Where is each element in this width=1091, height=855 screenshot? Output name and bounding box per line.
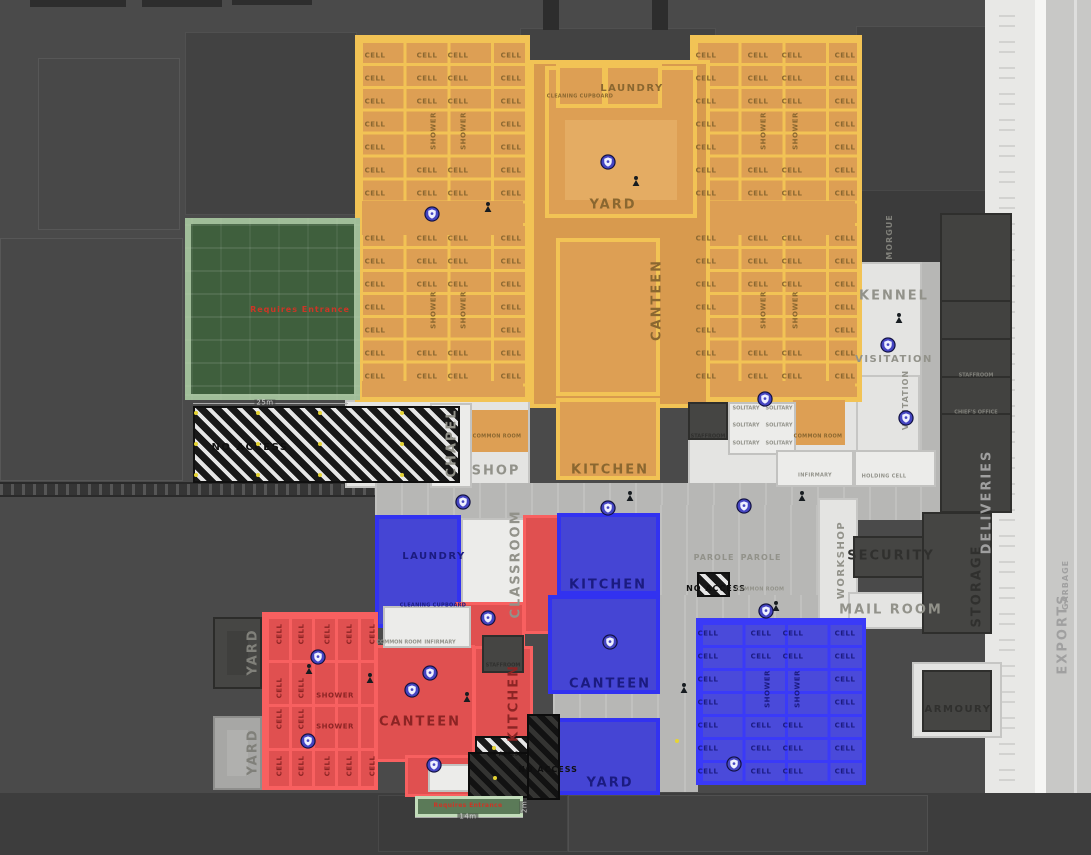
cell-label: CELL <box>835 328 856 335</box>
guard-badge-icon[interactable] <box>757 391 774 408</box>
label-chapel: CHAPEL <box>446 408 459 477</box>
cell-label: CELL <box>365 53 386 60</box>
label-kitchen-blue: KITCHEN <box>569 579 647 592</box>
label-requires-entrance: Requires Entrance <box>434 803 503 809</box>
cell-label: CELL <box>501 53 522 60</box>
guard-badge-icon[interactable] <box>300 733 317 750</box>
cell-label: CELL <box>835 746 856 753</box>
bg-bar <box>543 0 559 30</box>
cell-label: CELL <box>501 374 522 381</box>
cell-label: CELL <box>501 168 522 175</box>
cell-label: CELL <box>277 756 284 777</box>
cell-label: CELL <box>696 259 717 266</box>
cell-label: CELL <box>782 53 803 60</box>
cell-label: CELL <box>347 756 354 777</box>
cell-label: CELL <box>501 191 522 198</box>
cell-label: CELL <box>277 624 284 645</box>
cell-label: CELL <box>835 677 856 684</box>
cell-label: CELL <box>835 53 856 60</box>
cell-label: CELL <box>365 168 386 175</box>
cell-label: CELL <box>448 53 469 60</box>
cell-label: CELL <box>835 99 856 106</box>
canteen-room-orange[interactable] <box>556 238 660 396</box>
bg-building-nw <box>38 58 180 230</box>
bg-bar <box>652 0 668 30</box>
cell-label: CELL <box>365 122 386 129</box>
label-shower: SHOWER <box>431 291 438 329</box>
cell-label: CELL <box>370 624 377 645</box>
guard-badge-icon[interactable] <box>422 665 439 682</box>
cell-label: CELL <box>696 374 717 381</box>
south-corridor[interactable] <box>658 595 698 792</box>
guard-badge-icon[interactable] <box>455 494 472 511</box>
person-icon[interactable] <box>366 673 375 684</box>
cell-label: CELL <box>696 168 717 175</box>
label-yard-blue: YARD <box>586 777 633 790</box>
no-access-dot <box>256 473 260 477</box>
cell-label: CELL <box>417 168 438 175</box>
label-canteen-orange: CANTEEN <box>651 259 664 341</box>
label-infirmary: INFIRMARY <box>798 474 832 479</box>
cell-label: CELL <box>501 145 522 152</box>
cell-label: CELL <box>696 191 717 198</box>
cell-label: CELL <box>417 53 438 60</box>
guard-badge-icon[interactable] <box>600 500 617 517</box>
cell-label: CELL <box>501 259 522 266</box>
cell-label: CELL <box>696 122 717 129</box>
cell-label: CELL <box>782 76 803 83</box>
label-common-room: COMMON ROOM <box>794 435 843 440</box>
cell-label: CELL <box>448 76 469 83</box>
guard-badge-icon[interactable] <box>480 610 497 627</box>
cell-label: CELL <box>501 305 522 312</box>
canteen-red-zone[interactable] <box>375 645 475 762</box>
bg-building-topleft <box>185 32 357 215</box>
cell-label: CELL <box>299 624 306 645</box>
cell-label: CELL <box>835 631 856 638</box>
cell-label: CELL <box>698 654 719 661</box>
label-common-room: COMMON ROOM <box>473 435 522 440</box>
cell-label: CELL <box>835 700 856 707</box>
nw-corridor-lower[interactable] <box>362 381 523 397</box>
cell-label: CELL <box>835 76 856 83</box>
cell-label: CELL <box>698 723 719 730</box>
cell-label: CELL <box>783 723 804 730</box>
cell-label: CELL <box>751 723 772 730</box>
no-access-dot <box>256 442 260 446</box>
cell-label: CELL <box>782 168 803 175</box>
cell-label: CELL <box>448 374 469 381</box>
cell-label: CELL <box>782 259 803 266</box>
label-shower: SHOWER <box>316 693 354 700</box>
cell-label: CELL <box>299 756 306 777</box>
person-icon[interactable] <box>463 692 472 703</box>
label-common-room: COMMON ROOM <box>736 588 785 593</box>
cell-label: CELL <box>417 351 438 358</box>
cell-label: CELL <box>751 769 772 776</box>
cell-label: CELL <box>748 374 769 381</box>
label-shower: SHOWER <box>793 291 800 329</box>
person-icon[interactable] <box>632 176 641 187</box>
cell-label: CELL <box>417 191 438 198</box>
no-access-dot <box>675 739 679 743</box>
label-security: SECURITY <box>847 550 934 563</box>
ne-corridor-lower[interactable] <box>697 381 855 397</box>
label-solitary: SOLITARY <box>733 424 760 429</box>
office-divider <box>942 338 1010 340</box>
label-shower: SHOWER <box>761 291 768 329</box>
cell-label: CELL <box>696 282 717 289</box>
cell-label: CELL <box>698 631 719 638</box>
label-kitchen-orange: KITCHEN <box>571 464 649 477</box>
cell-label: CELL <box>698 746 719 753</box>
cleaning-cupboard-room[interactable] <box>556 64 606 108</box>
label-shower: SHOWER <box>793 112 800 150</box>
no-access-dark-2[interactable] <box>527 714 560 800</box>
cell-label: CELL <box>835 723 856 730</box>
label-workshop: WORKSHOP <box>837 521 847 599</box>
cell-label: CELL <box>417 259 438 266</box>
no-access-dot <box>194 442 198 446</box>
cell-label: CELL <box>696 99 717 106</box>
cell-label: CELL <box>417 282 438 289</box>
cell-label: CELL <box>501 236 522 243</box>
cell-label: CELL <box>501 76 522 83</box>
cell-label: CELL <box>448 351 469 358</box>
cell-label: CELL <box>696 236 717 243</box>
cell-label: CELL <box>501 351 522 358</box>
cell-label: CELL <box>748 282 769 289</box>
label-shower: SHOWER <box>761 112 768 150</box>
label-yard-gray: YARD <box>247 628 260 675</box>
cell-label: CELL <box>365 328 386 335</box>
cell-label: CELL <box>325 756 332 777</box>
no-access-dot <box>194 473 198 477</box>
no-access-dot <box>493 776 497 780</box>
cell-label: CELL <box>835 236 856 243</box>
bg-bar <box>30 0 126 7</box>
office-column[interactable] <box>940 213 1012 513</box>
cell-label: CELL <box>748 99 769 106</box>
label-no-access: NO ACCESS <box>518 766 578 774</box>
cell-label: CELL <box>783 654 804 661</box>
cell-label: CELL <box>448 236 469 243</box>
no-access-dot <box>256 411 260 415</box>
cell-label: CELL <box>782 99 803 106</box>
cell-label: CELL <box>698 700 719 707</box>
no-access-dot <box>400 473 404 477</box>
railroad <box>0 482 378 497</box>
label-kennel: KENNEL <box>859 290 929 303</box>
guard-badge-icon[interactable] <box>600 154 617 171</box>
label-classroom: CLASSROOM <box>510 509 523 618</box>
cell-label: CELL <box>365 236 386 243</box>
cell-label: CELL <box>365 351 386 358</box>
cell-label: CELL <box>501 328 522 335</box>
cell-label: CELL <box>448 191 469 198</box>
cell-label: CELL <box>835 351 856 358</box>
cell-label: CELL <box>748 53 769 60</box>
cell-label: CELL <box>365 374 386 381</box>
label-solitary: SOLITARY <box>733 407 760 412</box>
label-solitary: SOLITARY <box>766 424 793 429</box>
cell-label: CELL <box>835 259 856 266</box>
label-holding-cell: HOLDING CELL <box>862 475 907 480</box>
infirmary-room[interactable] <box>776 450 854 487</box>
guard-badge-icon[interactable] <box>426 757 443 774</box>
cell-label: CELL <box>370 756 377 777</box>
cell-label: CELL <box>835 654 856 661</box>
cell-label: CELL <box>835 122 856 129</box>
label-measure-2m: 2m <box>520 801 531 813</box>
person-icon[interactable] <box>680 683 689 694</box>
cell-label: CELL <box>748 351 769 358</box>
label-common-room: COMMON ROOM <box>376 641 421 646</box>
cell-label: CELL <box>299 709 306 730</box>
label-chiefs-office: CHIEF'S OFFICE <box>954 411 997 416</box>
cell-label: CELL <box>277 709 284 730</box>
no-access-dot <box>400 442 404 446</box>
label-shower: SHOWER <box>765 670 772 708</box>
cell-label: CELL <box>501 99 522 106</box>
cell-label: CELL <box>417 236 438 243</box>
bg-bar <box>232 0 312 5</box>
guard-badge-icon[interactable] <box>726 756 743 773</box>
label-measure-14m: 14m <box>457 814 478 821</box>
label-morgue: MORGUE <box>886 214 894 259</box>
label-shower: SHOWER <box>316 724 354 731</box>
label-deliveries: DELIVERIES <box>981 450 994 555</box>
label-staffroom-office: STAFFROOM <box>959 374 994 379</box>
label-yard-gray: YARD <box>247 728 260 775</box>
no-access-dot <box>318 442 322 446</box>
label-solitary: SOLITARY <box>766 442 793 447</box>
bg-bottom-building <box>568 795 928 852</box>
office-divider <box>942 300 1010 302</box>
no-access-dot <box>194 411 198 415</box>
label-exports: EXPORTS <box>1057 593 1070 674</box>
cell-label: CELL <box>365 191 386 198</box>
cell-label: CELL <box>299 678 306 699</box>
no-access-dot <box>318 473 322 477</box>
label-armoury: ARMOURY <box>925 705 992 715</box>
label-yard-orange: YARD <box>589 199 636 212</box>
cell-label: CELL <box>783 631 804 638</box>
armoury-room[interactable] <box>922 670 992 732</box>
cell-label: CELL <box>696 305 717 312</box>
cell-label: CELL <box>751 654 772 661</box>
label-shower: SHOWER <box>795 670 802 708</box>
label-measure-25m: 25m <box>254 400 275 407</box>
bg-bar <box>142 0 222 7</box>
label-laundry-orange: LAUNDRY <box>600 84 664 94</box>
cell-label: CELL <box>835 374 856 381</box>
cell-label: CELL <box>751 631 772 638</box>
label-parole: PAROLE <box>741 554 782 562</box>
guard-badge-icon[interactable] <box>758 603 775 620</box>
label-kitchen-red: KITCHEN <box>508 664 521 742</box>
label-shower: SHOWER <box>431 112 438 150</box>
cell-label: CELL <box>365 282 386 289</box>
nw-corridor-upper[interactable] <box>362 201 523 235</box>
yard-inner <box>565 120 677 200</box>
cell-label: CELL <box>696 76 717 83</box>
cell-label: CELL <box>501 122 522 129</box>
label-no-access-main: NO ACCESS <box>211 443 288 453</box>
cell-label: CELL <box>277 678 284 699</box>
cell-label: CELL <box>751 746 772 753</box>
person-icon[interactable] <box>895 313 904 324</box>
label-canteen-red: CANTEEN <box>379 716 461 729</box>
person-icon[interactable] <box>484 202 493 213</box>
cell-label: CELL <box>782 351 803 358</box>
person-icon[interactable] <box>626 491 635 502</box>
exports-road <box>1046 0 1091 855</box>
label-cleaning-cupboard: CLEANING CUPBOARD <box>547 95 614 100</box>
cell-label: CELL <box>698 677 719 684</box>
cell-label: CELL <box>325 624 332 645</box>
label-canteen-blue: CANTEEN <box>569 678 651 691</box>
no-access-dot <box>318 411 322 415</box>
label-parole: PAROLE <box>694 554 735 562</box>
common-room-left[interactable] <box>468 410 528 452</box>
cell-label: CELL <box>748 236 769 243</box>
cell-label: CELL <box>782 236 803 243</box>
label-requires-entrance: Requires Entrance <box>250 306 350 314</box>
cell-label: CELL <box>835 282 856 289</box>
label-visitation: VISITATION <box>855 355 933 365</box>
cell-label: CELL <box>783 769 804 776</box>
label-shower: SHOWER <box>461 291 468 329</box>
label-no-access: NO ACCESS <box>488 753 522 758</box>
no-access-dot <box>492 746 496 750</box>
label-infirmary-red: INFIRMARY <box>424 641 455 646</box>
cell-label: CELL <box>696 328 717 335</box>
guard-badge-icon[interactable] <box>424 206 441 223</box>
label-staffroom: STAFFROOM <box>691 435 726 440</box>
cell-label: CELL <box>365 99 386 106</box>
cell-label: CELL <box>448 99 469 106</box>
person-icon[interactable] <box>798 491 807 502</box>
cell-label: CELL <box>365 145 386 152</box>
cell-label: CELL <box>782 282 803 289</box>
prison-map: YARDCANTEENKITCHENLAUNDRYCLEANING CUPBOA… <box>0 0 1091 855</box>
perimeter-wall <box>1035 0 1046 855</box>
cell-label: CELL <box>417 374 438 381</box>
cell-label: CELL <box>748 76 769 83</box>
cell-label: CELL <box>835 305 856 312</box>
cell-label: CELL <box>417 99 438 106</box>
bg-building-w <box>0 238 183 481</box>
label-shop: SHOP <box>472 465 521 478</box>
guard-badge-icon[interactable] <box>736 498 753 515</box>
label-solitary: SOLITARY <box>733 442 760 447</box>
label-mail-room: MAIL ROOM <box>839 604 943 617</box>
label-laundry-blue: LAUNDRY <box>402 552 466 562</box>
cell-label: CELL <box>696 351 717 358</box>
cell-label: CELL <box>417 76 438 83</box>
cell-label: CELL <box>698 769 719 776</box>
guard-badge-icon[interactable] <box>310 649 327 666</box>
guard-badge-icon[interactable] <box>602 634 619 651</box>
cell-label: CELL <box>365 259 386 266</box>
cell-label: CELL <box>782 374 803 381</box>
cell-label: CELL <box>835 769 856 776</box>
bg-building-topright <box>856 26 992 212</box>
cell-label: CELL <box>501 282 522 289</box>
cell-label: CELL <box>835 168 856 175</box>
label-storage: STORAGE <box>971 545 984 628</box>
ne-corridor-upper[interactable] <box>697 201 855 235</box>
cell-label: CELL <box>748 191 769 198</box>
cell-label: CELL <box>835 191 856 198</box>
cell-label: CELL <box>448 282 469 289</box>
cell-label: CELL <box>783 746 804 753</box>
cell-label: CELL <box>448 168 469 175</box>
holding-cell-room[interactable] <box>854 450 936 487</box>
label-cleaning-cupboard: CLEANING CUPBOARD <box>400 604 467 609</box>
cell-label: CELL <box>748 259 769 266</box>
cell-label: CELL <box>365 76 386 83</box>
cell-label: CELL <box>347 624 354 645</box>
cell-label: CELL <box>448 259 469 266</box>
guard-badge-icon[interactable] <box>880 337 897 354</box>
no-access-dot <box>400 411 404 415</box>
cell-label: CELL <box>696 145 717 152</box>
guard-badge-icon[interactable] <box>404 682 421 699</box>
cell-label: CELL <box>748 168 769 175</box>
cell-label: CELL <box>696 53 717 60</box>
guard-badge-icon[interactable] <box>898 410 915 427</box>
label-staffroom-red: STAFFROOM <box>486 664 521 669</box>
label-shower: SHOWER <box>461 112 468 150</box>
cell-label: CELL <box>835 145 856 152</box>
cell-label: CELL <box>365 305 386 312</box>
cell-label: CELL <box>782 191 803 198</box>
